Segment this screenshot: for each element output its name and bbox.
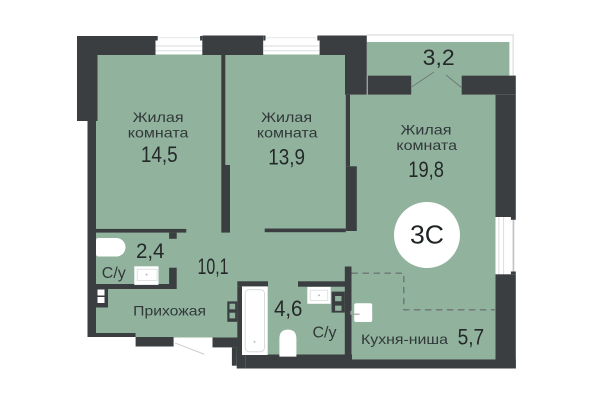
svg-text:С/у: С/у	[102, 265, 126, 282]
svg-text:Жилая: Жилая	[401, 122, 452, 138]
svg-text:3,2: 3,2	[423, 45, 455, 70]
svg-text:3C: 3C	[410, 222, 444, 250]
svg-text:Жилая: Жилая	[261, 109, 312, 125]
svg-text:Прихожая: Прихожая	[133, 303, 206, 319]
svg-text:13,9: 13,9	[268, 145, 305, 170]
svg-text:Жилая: Жилая	[133, 109, 184, 125]
svg-text:19,8: 19,8	[408, 157, 444, 182]
svg-text:2,4: 2,4	[136, 240, 165, 263]
svg-text:С/у: С/у	[313, 325, 337, 342]
svg-text:комната: комната	[257, 125, 318, 141]
svg-text:комната: комната	[396, 137, 457, 153]
svg-text:14,5: 14,5	[141, 142, 178, 167]
svg-text:4,6: 4,6	[274, 296, 303, 321]
svg-text:5,7: 5,7	[458, 325, 485, 350]
svg-text:10,1: 10,1	[198, 254, 229, 279]
svg-text:комната: комната	[128, 125, 189, 141]
svg-text:Кухня-ниша: Кухня-ниша	[361, 331, 448, 347]
